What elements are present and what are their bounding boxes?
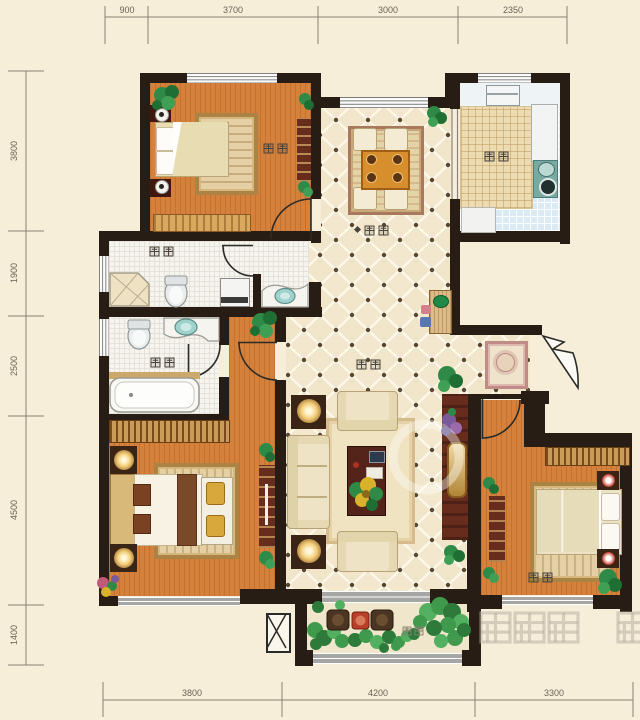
svg-text:3800: 3800 [9, 141, 19, 161]
svg-text:2500: 2500 [9, 356, 19, 376]
svg-text:3000: 3000 [378, 5, 398, 15]
svg-text:4200: 4200 [368, 688, 388, 698]
svg-text:3300: 3300 [544, 688, 564, 698]
svg-text:1400: 1400 [9, 625, 19, 645]
svg-text:4500: 4500 [9, 500, 19, 520]
svg-text:2350: 2350 [503, 5, 523, 15]
svg-text:1900: 1900 [9, 263, 19, 283]
svg-text:900: 900 [119, 5, 134, 15]
svg-text:3800: 3800 [182, 688, 202, 698]
svg-text:3700: 3700 [223, 5, 243, 15]
